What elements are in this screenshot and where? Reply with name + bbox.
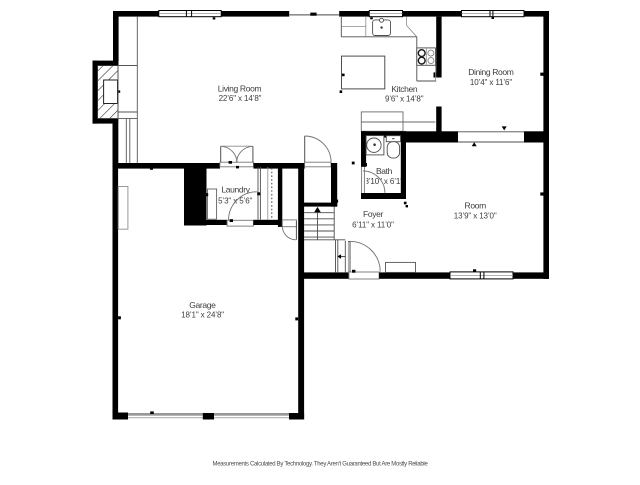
- svg-text:5’3" x 5’6": 5’3" x 5’6": [218, 196, 252, 205]
- svg-text:6’11" x 11’0": 6’11" x 11’0": [352, 220, 394, 229]
- svg-text:Living Room: Living Room: [218, 83, 262, 93]
- svg-text:Room: Room: [465, 201, 487, 211]
- svg-text:13’9" x 13’0": 13’9" x 13’0": [454, 211, 497, 220]
- svg-text:22’6" x 14’8": 22’6" x 14’8": [219, 94, 262, 103]
- svg-text:Dining Room: Dining Room: [468, 67, 514, 77]
- svg-text:Measurements Calculated By Tec: Measurements Calculated By Technology. T…: [213, 461, 429, 467]
- svg-text:9’6" x 14’8": 9’6" x 14’8": [385, 95, 424, 104]
- svg-text:Garage: Garage: [189, 300, 216, 310]
- svg-text:Foyer: Foyer: [363, 209, 383, 219]
- svg-text:Laundry: Laundry: [221, 185, 250, 195]
- svg-text:10’4" x 11’6": 10’4" x 11’6": [470, 78, 513, 87]
- svg-text:Bath: Bath: [376, 166, 393, 176]
- svg-text:18’1" x 24’8": 18’1" x 24’8": [181, 311, 224, 320]
- svg-text:Kitchen: Kitchen: [391, 84, 418, 94]
- svg-text:3’10" x 6’1": 3’10" x 6’1": [364, 177, 403, 186]
